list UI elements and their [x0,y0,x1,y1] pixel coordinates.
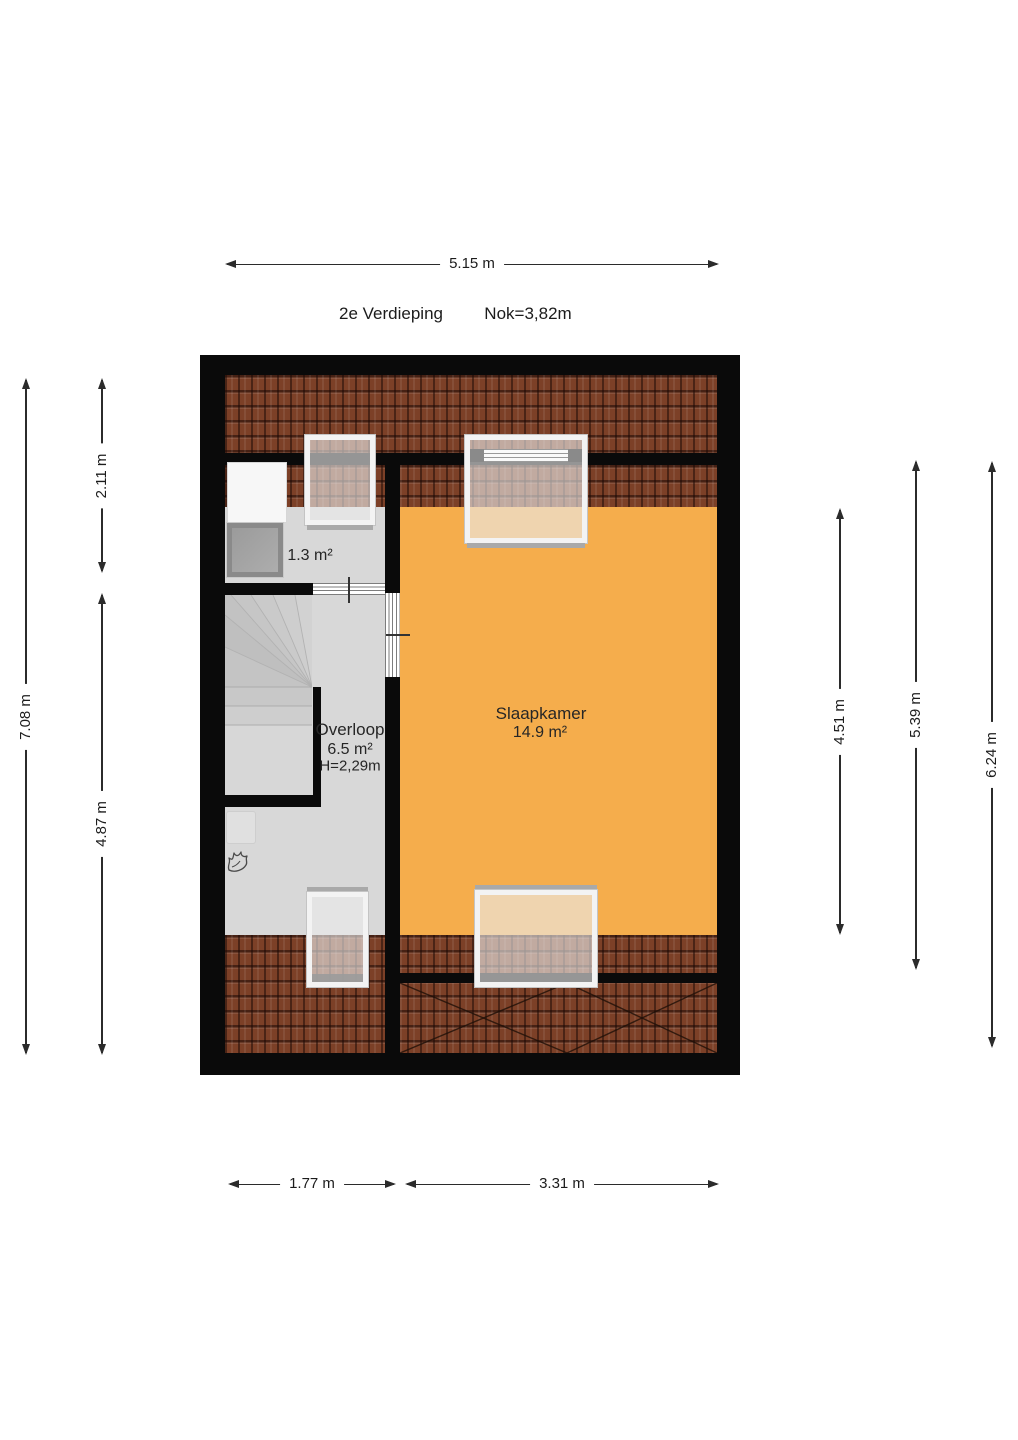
arrowhead-down-icon [22,1044,30,1055]
door-center-mark [348,577,350,603]
arrowhead-down-icon [988,1037,996,1048]
dimension-label: 4.87 m [94,791,111,857]
arrowhead-up-icon [836,508,844,519]
arrowhead-down-icon [836,924,844,935]
floor-title: 2e Verdieping [339,304,443,324]
landing-height-label: H=2,29m [319,758,380,775]
wall-niche [226,811,256,844]
skylight-top-right [465,435,587,543]
flame-sketch-icon [226,849,250,875]
arrowhead-up-icon [988,461,996,472]
arrowhead-down-icon [98,562,106,573]
skylight-sill [307,525,373,530]
bedroom-area-label: 14.9 m² [513,724,567,742]
storage-unit [227,523,283,577]
door-center-mark [386,634,410,636]
window-blind [482,449,570,462]
arrowhead-down-icon [98,1044,106,1055]
floorplan: 1.3 m² Overloop 6.5 m² H=2,29m Slaapkame… [200,355,740,1075]
arrowhead-up-icon [22,378,30,389]
staircase [225,595,312,795]
arrowhead-up-icon [98,378,106,389]
ridge-height-label: Nok=3,82m [484,304,571,324]
landing-area-label: 6.5 m² [327,741,372,759]
skylight-sill [467,543,585,548]
landing-name-label: Overloop [316,720,385,740]
skylight-bottom-right [475,890,597,987]
dimension-label: 4.51 m [832,689,849,755]
arrowhead-left-icon [405,1180,416,1188]
arrowhead-right-icon [708,260,719,268]
arrowhead-right-icon [385,1180,396,1188]
dimension-label: 5.39 m [908,682,925,748]
arrowhead-right-icon [708,1180,719,1188]
dimension-label: 3.31 m [530,1176,594,1193]
interior-wall-vertical-upper [385,453,400,593]
skylight-bottom-left [307,892,368,987]
dimension-label: 5.15 m [440,256,504,273]
dimension-label: 6.24 m [984,722,1001,788]
arrowhead-down-icon [912,959,920,970]
arrowhead-left-icon [225,260,236,268]
skylight-base-bar [312,974,363,982]
storage-wall [225,583,313,595]
cabinet [227,462,287,523]
page: { "title": { "floor_label": "2e Verdiepi… [0,0,1018,1440]
dimension-label: 7.08 m [18,684,35,750]
arrowhead-up-icon [912,460,920,471]
dimension-label: 1.77 m [280,1176,344,1193]
stair-wall-horizontal [225,795,321,807]
arrowhead-left-icon [228,1180,239,1188]
skylight-base-bar [480,974,592,982]
blind-end-cap [470,449,484,462]
storage-area-label: 1.3 m² [287,547,332,565]
skylight-top-left [305,435,375,525]
blind-end-cap [568,449,582,462]
dimension-label: 2.11 m [94,443,111,508]
stair-wall-vertical [313,687,321,807]
bedroom-name-label: Slaapkamer [496,704,587,724]
interior-wall-vertical-lower [385,677,400,1053]
arrowhead-up-icon [98,593,106,604]
roof-cross-brace [400,983,717,1053]
